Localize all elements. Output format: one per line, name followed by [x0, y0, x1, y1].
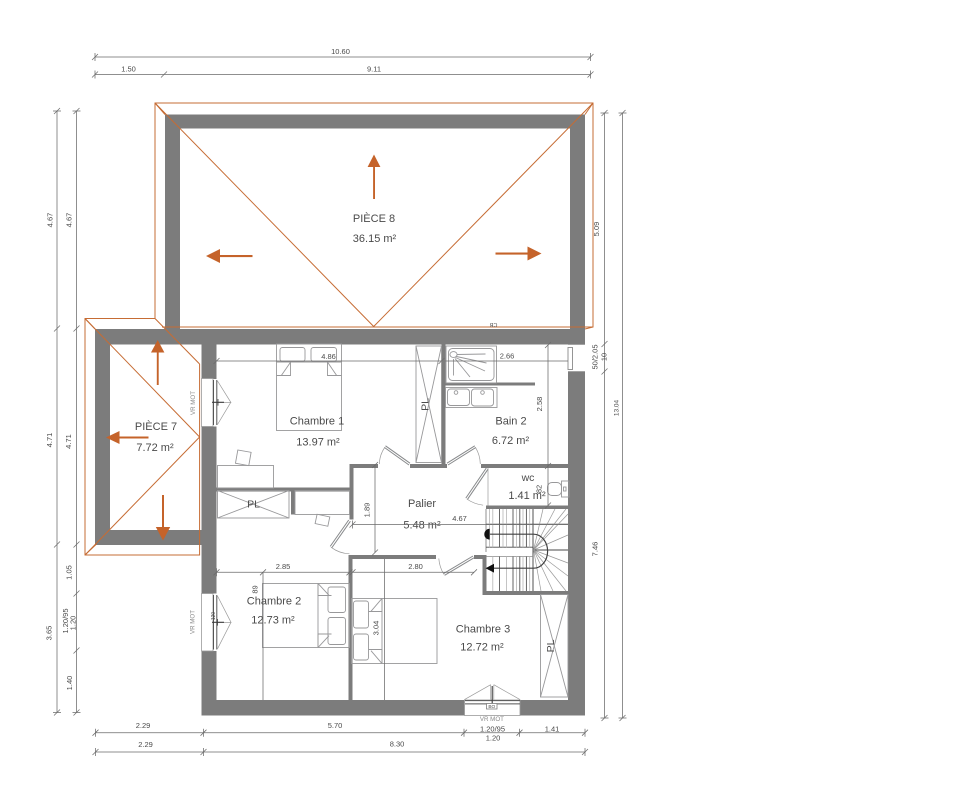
- svg-text:2.80: 2.80: [408, 562, 423, 571]
- svg-text:VR MOT: VR MOT: [190, 610, 197, 634]
- svg-text:1.41: 1.41: [545, 725, 560, 734]
- svg-text:3.04: 3.04: [372, 621, 381, 636]
- svg-text:4.67: 4.67: [452, 514, 467, 523]
- svg-text:7.72 m²: 7.72 m²: [136, 442, 174, 454]
- svg-text:50/2.05: 50/2.05: [591, 344, 600, 369]
- svg-text:10.60: 10.60: [331, 47, 350, 56]
- svg-text:7.46: 7.46: [591, 542, 600, 557]
- svg-text:1.20/95: 1.20/95: [480, 725, 505, 734]
- svg-text:BO: BO: [488, 704, 495, 710]
- svg-text:36.15 m²: 36.15 m²: [353, 233, 397, 245]
- svg-text:Bain 2: Bain 2: [495, 416, 526, 428]
- svg-text:2.29: 2.29: [136, 721, 151, 730]
- svg-text:PIÈCE 7: PIÈCE 7: [135, 420, 177, 433]
- svg-text:Chambre 1: Chambre 1: [290, 416, 344, 428]
- svg-text:5.48 m²: 5.48 m²: [403, 520, 441, 532]
- svg-text:1.20: 1.20: [69, 616, 78, 631]
- svg-text:1.50: 1.50: [121, 65, 136, 74]
- svg-text:6.72 m²: 6.72 m²: [492, 435, 530, 447]
- svg-text:13.04: 13.04: [614, 399, 621, 416]
- svg-text:2.66: 2.66: [500, 352, 515, 361]
- svg-text:2.58: 2.58: [535, 397, 544, 412]
- svg-text:8.30: 8.30: [390, 740, 405, 749]
- svg-text:12.73 m²: 12.73 m²: [251, 615, 295, 627]
- svg-text:PL: PL: [247, 499, 260, 511]
- svg-text:3.65: 3.65: [45, 626, 54, 641]
- svg-text:1.05: 1.05: [65, 565, 74, 580]
- svg-text:12.72 m²: 12.72 m²: [460, 642, 504, 654]
- svg-text:Chambre 2: Chambre 2: [247, 596, 301, 608]
- svg-text:89: 89: [251, 585, 260, 593]
- svg-text:PIÈCE 8: PIÈCE 8: [353, 212, 395, 225]
- svg-text:1.89: 1.89: [363, 503, 372, 518]
- svg-text:4.67: 4.67: [65, 213, 74, 228]
- svg-text:PL: PL: [545, 639, 557, 652]
- svg-text:wc: wc: [521, 472, 535, 484]
- svg-text:5.70: 5.70: [328, 721, 343, 730]
- svg-text:1.40: 1.40: [65, 676, 74, 691]
- svg-text:Chambre 3: Chambre 3: [456, 624, 510, 636]
- svg-text:1.20: 1.20: [486, 734, 501, 743]
- svg-text:Palier: Palier: [408, 498, 436, 510]
- svg-text:10: 10: [600, 353, 609, 361]
- svg-text:CB: CB: [489, 321, 497, 327]
- svg-text:4.71: 4.71: [45, 433, 54, 448]
- svg-text:120: 120: [211, 612, 217, 621]
- svg-text:9.11: 9.11: [367, 65, 381, 74]
- svg-text:4.71: 4.71: [64, 434, 73, 449]
- svg-text:4.67: 4.67: [46, 213, 55, 228]
- svg-text:2.85: 2.85: [276, 562, 291, 571]
- svg-text:13.97 m²: 13.97 m²: [296, 437, 340, 449]
- svg-text:2.29: 2.29: [138, 740, 153, 749]
- svg-text:1.41 m²: 1.41 m²: [508, 490, 546, 502]
- svg-text:PL: PL: [420, 398, 432, 411]
- svg-text:4.86: 4.86: [321, 352, 336, 361]
- svg-text:VR MOT: VR MOT: [480, 716, 504, 723]
- svg-text:VR MOT: VR MOT: [190, 391, 197, 415]
